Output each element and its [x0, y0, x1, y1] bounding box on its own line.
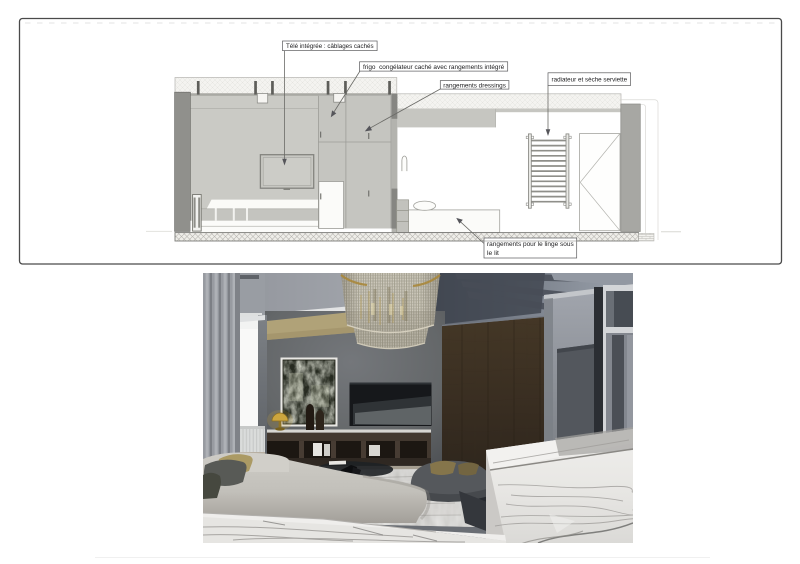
svg-text:Télé intégrée : câblages caché: Télé intégrée : câblages cachés [286, 43, 374, 50]
svg-text:rangements dressings: rangements dressings [443, 82, 506, 89]
svg-text:le lit: le lit [487, 250, 499, 257]
svg-text:rangements pour le linge sous: rangements pour le linge sous [487, 241, 574, 248]
svg-text:radiateur et sèche serviette: radiateur et sèche serviette [552, 77, 628, 84]
svg-text:frigo congélateur caché avec: frigo congélateur caché avec rangements … [363, 64, 504, 71]
